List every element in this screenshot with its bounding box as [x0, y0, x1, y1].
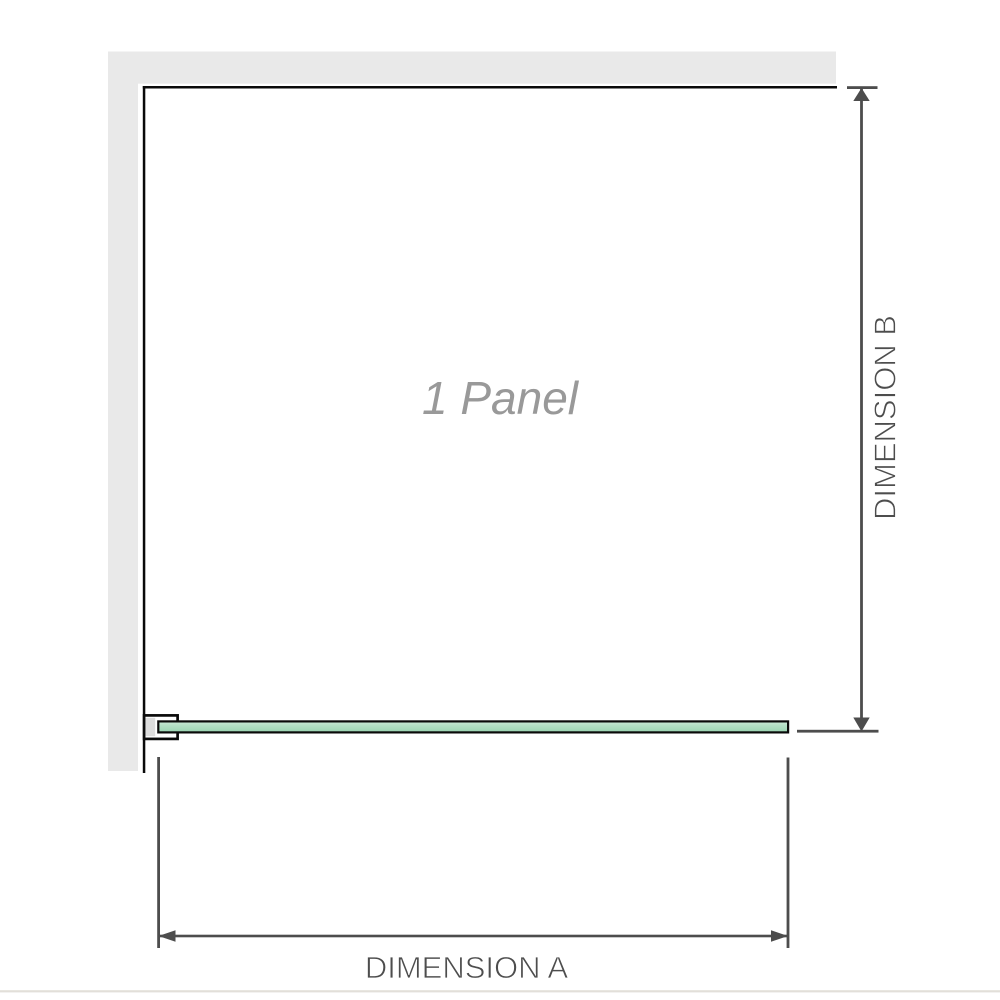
svg-text:1 Panel: 1 Panel: [422, 372, 580, 424]
svg-text:DIMENSION A: DIMENSION A: [365, 950, 569, 985]
svg-text:DIMENSION B: DIMENSION B: [868, 315, 903, 520]
